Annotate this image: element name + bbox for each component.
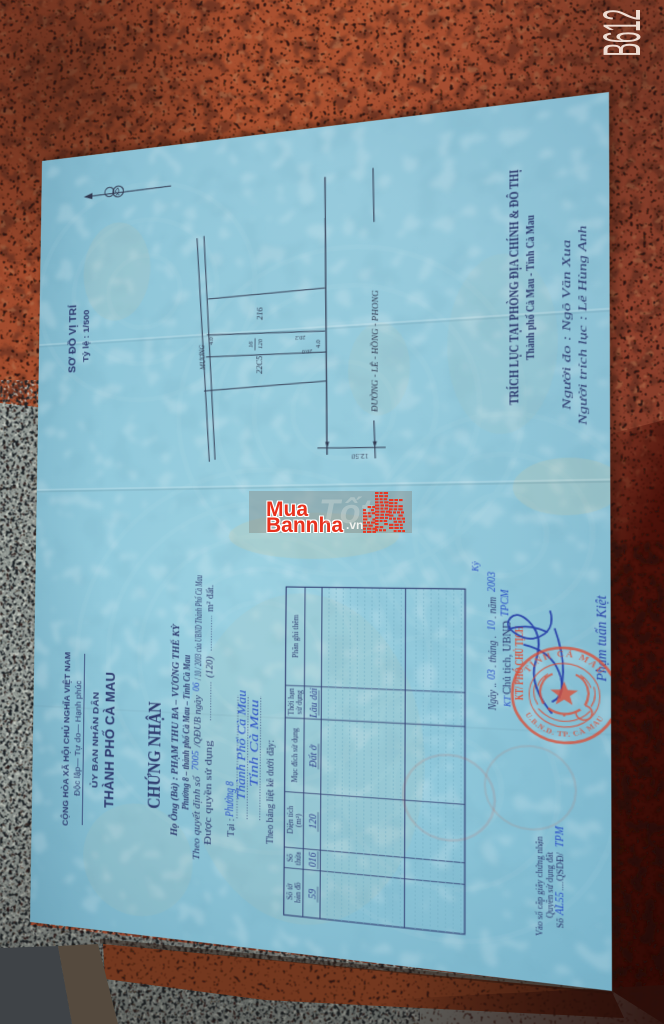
svg-text:Lâu dài: Lâu dài xyxy=(307,687,319,719)
svg-text:20.0: 20.0 xyxy=(301,347,312,354)
svg-text:Thành phố Cà Mau - Tỉnh Cà Mau: Thành phố Cà Mau - Tỉnh Cà Mau xyxy=(524,214,537,360)
svg-text:Tại :: Tại : xyxy=(225,818,236,838)
svg-text:Mục đích sử dụng: Mục đích sử dụng xyxy=(291,727,299,783)
svg-text:Diện tích: Diện tích xyxy=(287,805,295,834)
svg-text:59: 59 xyxy=(306,888,318,900)
svg-text:20.2: 20.2 xyxy=(295,333,306,340)
svg-text:120: 120 xyxy=(258,339,265,349)
svg-text:Số: Số xyxy=(287,853,295,862)
svg-text:Độc lập— Tự do— Hạnh phúc: Độc lập— Tự do— Hạnh phúc xyxy=(73,680,84,796)
svg-text:TPCM: TPCM xyxy=(498,588,511,616)
svg-text:Phường 8: Phường 8 xyxy=(224,781,236,818)
svg-text:/QĐUB ngày: /QĐUB ngày xyxy=(193,695,203,749)
svg-text:Phần ghi thêm: Phần ghi thêm xyxy=(292,614,300,658)
svg-text:Thời hạn: Thời hạn xyxy=(288,687,296,715)
svg-text:bản đồ: bản đồ xyxy=(295,881,303,903)
svg-text:AL55: AL55 xyxy=(552,891,565,917)
svg-text:(m²): (m²) xyxy=(296,814,304,828)
svg-text:06: 06 xyxy=(192,681,202,691)
svg-text:sử dụng: sử dụng xyxy=(296,689,304,714)
svg-text:Số: Số xyxy=(555,917,567,928)
svg-text:. tháng .: . tháng . xyxy=(488,636,500,668)
svg-text:03: 03 xyxy=(485,668,498,679)
svg-text:Tỷ lệ : 1/500: Tỷ lệ : 1/500 xyxy=(81,309,91,363)
svg-text:216: 216 xyxy=(255,307,265,320)
svg-text:120: 120 xyxy=(307,813,319,829)
svg-text:TRÍCH LỤC TẠI PHÒNG ĐỊA CHÍNH: TRÍCH LỤC TẠI PHÒNG ĐỊA CHÍNH & ĐÔ THỊ xyxy=(506,169,523,406)
svg-text:Phường 8 – thành phố Cà Mau –: Phường 8 – thành phố Cà Mau – Tỉnh Cà Ma… xyxy=(181,654,192,810)
svg-text:m² đất.: m² đất. xyxy=(205,585,216,612)
svg-text:Đất ở: Đất ở xyxy=(307,743,319,769)
svg-text:THÀNH PHỐ CÀ MAU: THÀNH PHỐ CÀ MAU xyxy=(101,672,118,809)
svg-text:Kỷ: Kỷ xyxy=(470,561,481,573)
svg-text:TPM: TPM xyxy=(552,825,565,848)
svg-text:4.0: 4.0 xyxy=(209,337,216,345)
svg-text:2003: 2003 xyxy=(485,571,498,592)
svg-text:16: 16 xyxy=(249,340,256,348)
svg-text:(120): (120) xyxy=(204,656,215,678)
svg-text:016: 016 xyxy=(306,851,318,868)
svg-text:Được quyền sử dụng: Được quyền sử dụng xyxy=(202,740,214,846)
svg-text:thửa: thửa xyxy=(295,852,303,866)
svg-text:CHỨNG NHẬN: CHỨNG NHẬN xyxy=(144,701,165,810)
svg-text:MƯƠNG: MƯƠNG xyxy=(198,344,208,371)
svg-text:SƠ ĐỒ VỊ TRÍ: SƠ ĐỒ VỊ TRÍ xyxy=(66,304,78,373)
svg-text:12.50: 12.50 xyxy=(350,451,368,459)
svg-text:Ngày ..: Ngày .. xyxy=(488,682,500,711)
svg-text:....QSDĐ/: ....QSDĐ/ xyxy=(555,851,567,891)
svg-text:Theo quyết định số: Theo quyết định số xyxy=(192,775,203,860)
svg-text:10: 10 xyxy=(485,620,498,631)
svg-text:/ 10 / 2003 của UBND Thành Ph: / 10 / 2003 của UBND Thành Phố Cà Mau xyxy=(194,575,205,681)
svg-text:4.0: 4.0 xyxy=(316,340,323,349)
svg-text:Số tờ: Số tờ xyxy=(287,883,295,900)
svg-text:ĐƯỜNG - LÊ - HỒNG - PHONG: ĐƯỜNG - LÊ - HỒNG - PHONG xyxy=(369,289,381,413)
svg-text:22C5: 22C5 xyxy=(255,355,265,374)
svg-text:Người trích lục : Lê Hùng Anh: Người trích lục : Lê Hùng Anh xyxy=(576,224,590,427)
svg-text:Theo bảng liệt kê dưới đây:: Theo bảng liệt kê dưới đây: xyxy=(264,739,276,844)
svg-text:Người đo : Ngô Văn Xua: Người đo : Ngô Văn Xua xyxy=(560,239,573,413)
svg-text:7005: 7005 xyxy=(190,750,201,771)
